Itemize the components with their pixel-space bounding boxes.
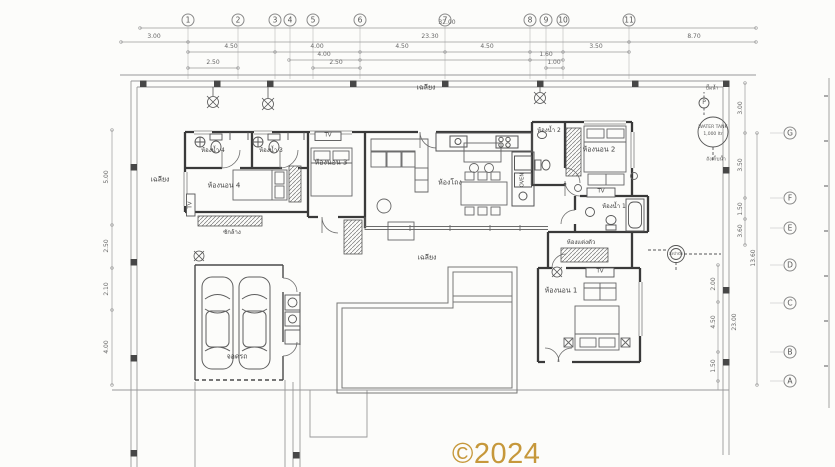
label-tv-bedroom3: TV — [324, 133, 331, 139]
sliding-doors — [365, 217, 548, 231]
dim-right: 1.50 — [738, 202, 744, 215]
grid-bubble-C: C — [784, 297, 797, 310]
dim-right: 4.50 — [711, 315, 717, 328]
dim-top: 3.50 — [589, 44, 602, 50]
label-tv-bedroom1: TV — [596, 269, 603, 275]
watermark: ©2024 www.huahinproperty94.com — [452, 438, 835, 467]
label-terrace-left: เฉลียง — [151, 177, 170, 184]
label-bath-2: ห้องน้ำ 2 — [537, 128, 561, 134]
label-pump-symbol: P — [702, 100, 706, 106]
label-terrace-center: เฉลียง — [418, 255, 437, 262]
grid-bubble-5: 5 — [307, 14, 320, 27]
floorplan-drawing — [0, 0, 835, 467]
water-system — [648, 92, 728, 270]
grid-bubble-6: 6 — [354, 14, 367, 27]
label-water-tank-1: WATER TANK — [699, 126, 728, 131]
dim-top: 1.00 — [547, 60, 560, 66]
dim-left: 2.50 — [104, 239, 110, 252]
label-bedroom-4: ห้องนอน 4 — [208, 183, 241, 190]
dim-right: 1.50 — [711, 359, 717, 372]
sheet-edge-marks — [824, 95, 828, 367]
floorplan-page: 1 2 3 4 5 6 7 8 9 10 11 G F E D C B A 32… — [0, 0, 835, 467]
garage-walls — [195, 265, 300, 380]
label-carport: จอดรถ — [227, 354, 248, 361]
grid-bubble-8: 8 — [524, 14, 537, 27]
dim-right: 3.00 — [738, 101, 744, 114]
dim-overall-width: 32.00 — [438, 20, 455, 26]
label-laundry: ซักล้าง — [223, 230, 241, 236]
grid-bubble-1: 1 — [182, 14, 195, 27]
label-pump: ปั๊มน้ำ — [706, 87, 719, 92]
grid-bubble-4: 4 — [284, 14, 297, 27]
dim-top: 3.00 — [147, 34, 160, 40]
grid-bubble-E: E — [784, 222, 797, 235]
label-tank: ถังเก็บน้ำ — [706, 158, 726, 163]
grid-bubble-D: D — [784, 259, 797, 272]
dim-top: 4.00 — [310, 44, 323, 50]
dim-top: 4.50 — [480, 44, 493, 50]
label-water-tank-2: 1,000 ltr — [703, 133, 722, 138]
swimming-pool — [337, 267, 517, 393]
dim-right: 3.50 — [738, 158, 744, 171]
dim-top: 4.50 — [395, 44, 408, 50]
label-septic: ถังบำบัด — [669, 252, 683, 256]
label-dressing: ห้องแต่งตัว — [567, 240, 595, 246]
label-bath-1: ห้องน้ำ 1 — [602, 204, 626, 210]
grid-bubble-F: F — [784, 192, 797, 205]
label-hall: ห้องโถง — [438, 180, 462, 187]
label-tv-bedroom4: TV — [188, 201, 194, 208]
dim-top: 8.70 — [687, 34, 700, 40]
grid-bubble-B: B — [784, 346, 797, 359]
grid-bubble-9: 9 — [540, 14, 553, 27]
grid-bubble-3: 3 — [269, 14, 282, 27]
label-bath-3: ห้องน้ำ 3 — [259, 148, 283, 154]
grid-bubble-2: 2 — [232, 14, 245, 27]
dim-top: 2.50 — [206, 60, 219, 66]
label-bedroom-3: ห้องนอน 3 — [315, 160, 348, 167]
dim-top: 4.00 — [317, 52, 330, 58]
dim-left: 4.00 — [104, 340, 110, 353]
label-bedroom-1: ห้องนอน 1 — [545, 288, 578, 295]
label-terrace-top: เฉลียง — [417, 85, 436, 92]
dim-right: 3.60 — [738, 224, 744, 237]
dim-left: 2.10 — [104, 282, 110, 295]
grid-bubble-10: 10 — [557, 14, 570, 27]
grid-bubble-G: G — [784, 127, 797, 140]
dim-right: 13.60 — [751, 249, 757, 266]
label-bath-4: ห้องน้ำ 4 — [201, 148, 225, 154]
dim-left: 5.00 — [104, 170, 110, 183]
dim-top: 2.50 — [329, 60, 342, 66]
dim-top: 23.30 — [421, 34, 438, 40]
grid-bubble-A: A — [784, 375, 797, 388]
grid-bubble-11: 11 — [623, 14, 636, 27]
dim-top: 4.50 — [224, 44, 237, 50]
grid-stem-lines — [188, 27, 783, 381]
dim-right: 23.00 — [732, 313, 738, 330]
label-tv-bedroom2: TV — [597, 189, 604, 195]
label-bedroom-2: ห้องนอน 2 — [583, 147, 616, 154]
label-oven: OVEN — [521, 173, 526, 187]
dim-right: 2.00 — [711, 277, 717, 290]
utility-appliances — [285, 295, 300, 344]
dim-top: 1.60 — [539, 52, 552, 58]
